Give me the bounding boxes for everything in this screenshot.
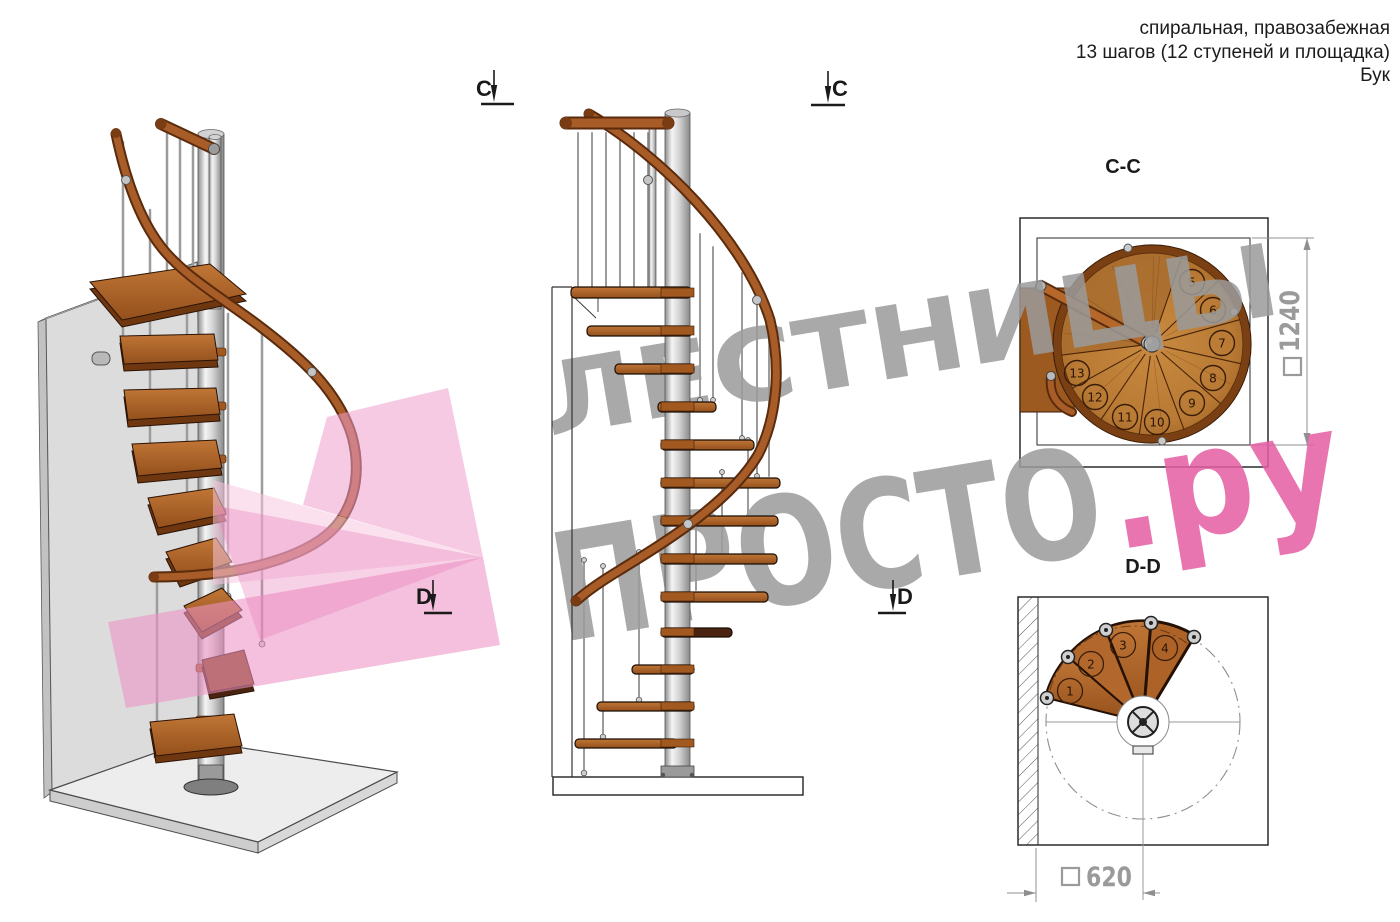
section-marker-c-left: C bbox=[476, 70, 514, 104]
elevation-column-base bbox=[661, 766, 694, 777]
svg-text:C: C bbox=[476, 76, 492, 101]
dd-dimension-value: 620 bbox=[1086, 862, 1132, 893]
svg-text:C: C bbox=[832, 76, 848, 101]
header-line1: спиральная, правозабежная bbox=[1140, 18, 1390, 39]
elevation-post bbox=[649, 125, 656, 288]
svg-text:D: D bbox=[416, 584, 432, 609]
header-annotation: спиральная, правозабежная 13 шагов (12 с… bbox=[1076, 18, 1391, 86]
dd-wall-hatch bbox=[1018, 597, 1038, 845]
header-line2: 13 шагов (12 ступеней и площадка) bbox=[1076, 42, 1390, 63]
elevation-floor bbox=[553, 777, 803, 795]
section-dd-view: D-D 1 2 3 bbox=[1007, 556, 1268, 902]
section-marker-c-right: C bbox=[811, 71, 848, 105]
watermark-line2-accent: .ру bbox=[1093, 375, 1353, 585]
square-symbol-icon bbox=[1284, 358, 1301, 375]
svg-text:3: 3 bbox=[1119, 639, 1127, 653]
drawing-sheet: C-C bbox=[0, 0, 1400, 922]
svg-text:1: 1 bbox=[1066, 685, 1074, 699]
svg-text:12: 12 bbox=[1087, 391, 1102, 405]
staircase-technical-drawing: C-C bbox=[0, 0, 1400, 922]
section-cc-label: C-C bbox=[1105, 156, 1141, 178]
square-symbol-icon bbox=[1062, 868, 1079, 885]
svg-text:D: D bbox=[897, 584, 913, 609]
svg-text:2: 2 bbox=[1087, 658, 1095, 672]
svg-text:8: 8 bbox=[1209, 372, 1217, 386]
header-line3: Бук bbox=[1360, 65, 1391, 86]
dd-dimension-620: 620 bbox=[1007, 848, 1160, 902]
iso-column-base bbox=[184, 779, 238, 795]
iso-wall-mount bbox=[92, 352, 110, 365]
svg-text:4: 4 bbox=[1161, 642, 1169, 656]
